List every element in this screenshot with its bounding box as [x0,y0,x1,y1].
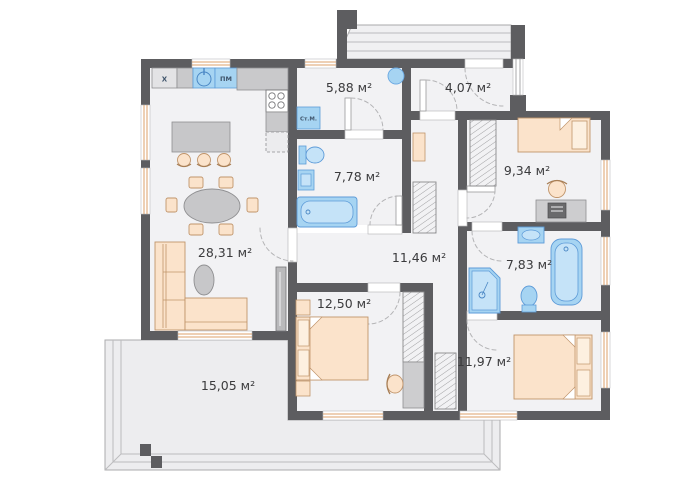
stove-icon [266,90,288,112]
window [305,59,336,68]
nightstand-icon [296,300,310,315]
tv-icon [276,267,286,331]
window [601,160,610,210]
kitchen-counter [237,68,288,90]
toilet-icon [299,146,324,164]
window [601,332,610,388]
terrace-step-post [140,444,151,456]
desk-icon [536,200,586,222]
dining-table-icon [184,189,240,223]
room-area-label: 9,34 м² [504,163,550,178]
window [601,237,610,285]
toilet-icon [521,286,537,312]
window [192,59,230,68]
bar-stool-icon [177,154,231,167]
fridge-label: Х [162,76,168,84]
dresser-icon [403,362,424,408]
wardrobe-icon [435,353,456,409]
kitchen-island [172,122,231,167]
room-area-label: 15,05 м² [201,378,255,393]
window [141,105,150,160]
room-area-label: 28,31 м² [198,245,252,260]
double-bed-icon [514,335,592,399]
kitchen-counter [266,112,288,132]
double-bed-icon [296,317,368,380]
floor-plan: ПМ [0,0,674,502]
window [460,411,517,420]
window [513,59,523,95]
room-area-label: 5,88 м² [326,80,372,95]
shower-icon [469,268,500,313]
wardrobe-icon [470,120,496,186]
room-area-label: 11,46 м² [392,250,446,265]
dishwasher-label: ПМ [220,75,232,83]
nightstand-icon [296,381,310,396]
boiler-icon [388,68,404,84]
coffee-table-icon [194,265,214,295]
kitchen-cabinet [266,132,288,152]
single-bed-icon [518,118,590,152]
bathtub-icon [297,197,357,227]
sink-icon [518,227,544,243]
wardrobe-icon [413,182,436,233]
room-area-label: 4,07 м² [445,80,491,95]
bathtub-icon [551,239,582,305]
kitchen-sink-icon [193,68,215,88]
window [141,168,150,214]
room-area-label: 11,97 м² [457,354,511,369]
room-area-label: 12,50 м² [317,296,371,311]
wardrobe-icon [403,292,424,362]
kitchen-counter [177,68,193,88]
washing-machine-icon: Ст.М. [297,107,320,129]
washing-machine-label: Ст.М. [300,117,317,123]
console-icon [413,133,425,161]
room-area-label: 7,78 м² [334,169,380,184]
terrace-step-post [151,456,162,468]
room-area-label: 7,83 м² [506,257,552,272]
window [323,411,383,420]
sink-icon [298,170,314,190]
dishwasher-icon: ПМ [215,68,237,88]
porch-canopy [337,25,511,59]
bedroom-third-furniture [514,335,592,399]
window [178,331,252,340]
vanity-chair-icon [387,374,403,394]
